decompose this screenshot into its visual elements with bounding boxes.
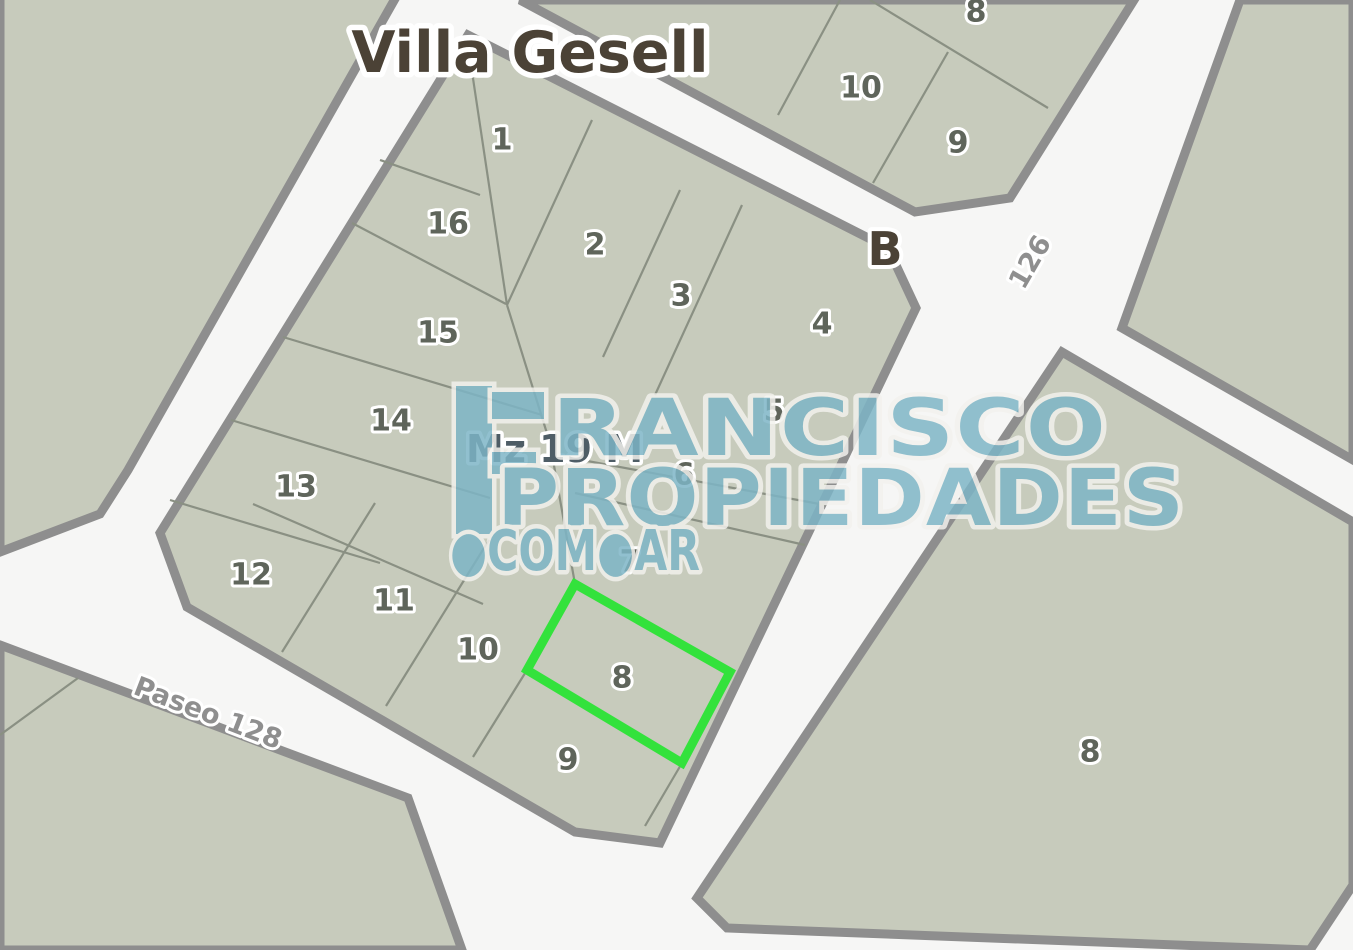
- lot-number: 3: [671, 279, 692, 314]
- lot-number: 10: [840, 71, 882, 106]
- lot-number: 9: [558, 743, 579, 778]
- lot-number: 8: [1080, 735, 1101, 770]
- lot-number: 4: [812, 307, 833, 342]
- lot-number: 10: [457, 633, 499, 668]
- map-canvas: 1162341551461371211108981098 Villa Gesel…: [0, 0, 1353, 950]
- parcel-map: 1162341551461371211108981098 Villa Gesel…: [0, 0, 1353, 950]
- lot-number: 12: [230, 558, 272, 593]
- lot-number: 9: [948, 126, 969, 161]
- lot-number: 16: [427, 207, 469, 242]
- junction-label: B: [867, 222, 902, 276]
- lot-number-highlighted: 8: [612, 661, 633, 696]
- lot-number: 1: [492, 123, 513, 158]
- lot-number: 15: [417, 316, 459, 351]
- lot-number: 13: [275, 470, 317, 505]
- city-title: Villa Gesell: [351, 20, 708, 86]
- lot-number: 14: [370, 404, 412, 439]
- lot-number: 2: [585, 228, 606, 263]
- watermark-line-3: ●COM●AR: [450, 519, 700, 584]
- lot-number: 8: [966, 0, 987, 30]
- lot-number: 11: [373, 584, 415, 619]
